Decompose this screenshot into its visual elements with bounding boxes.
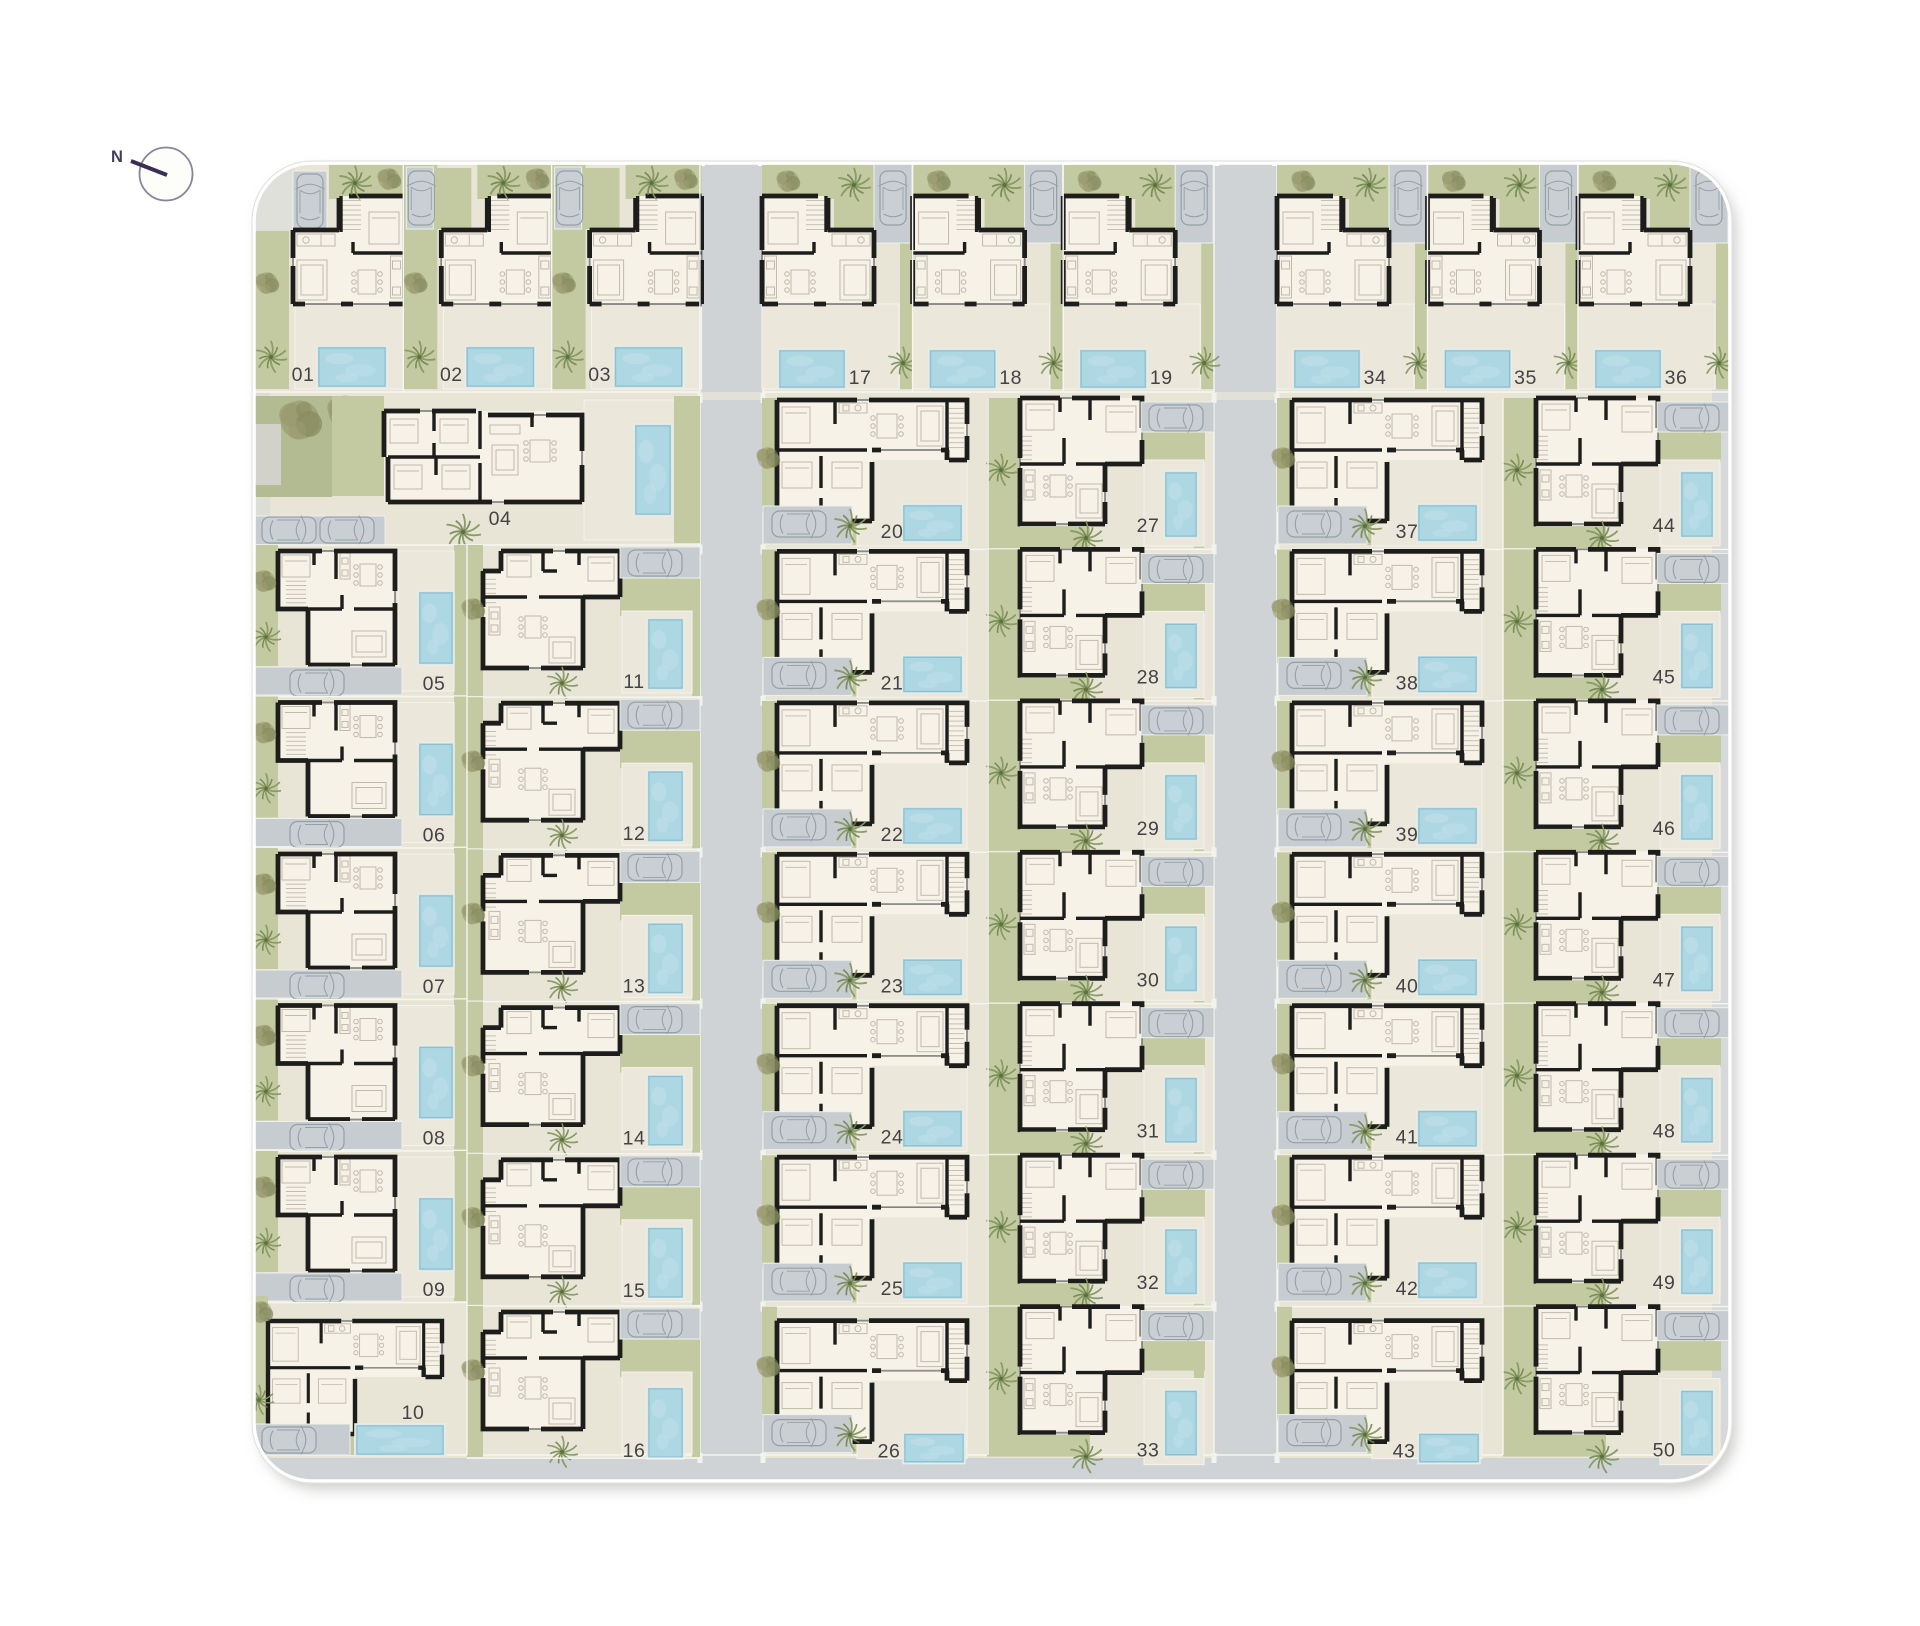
svg-text:18: 18 (999, 367, 1022, 389)
svg-text:40: 40 (1396, 975, 1419, 997)
svg-text:38: 38 (1396, 672, 1419, 694)
svg-text:28: 28 (1137, 666, 1160, 688)
svg-text:03: 03 (588, 364, 611, 386)
svg-text:10: 10 (402, 1402, 425, 1424)
svg-text:49: 49 (1653, 1272, 1676, 1294)
svg-text:48: 48 (1653, 1121, 1676, 1143)
svg-text:07: 07 (423, 976, 446, 998)
svg-text:09: 09 (423, 1279, 446, 1301)
svg-text:12: 12 (623, 823, 646, 845)
svg-text:34: 34 (1364, 367, 1387, 389)
svg-text:17: 17 (849, 367, 872, 389)
svg-text:14: 14 (623, 1128, 646, 1150)
svg-text:43: 43 (1393, 1441, 1416, 1463)
svg-text:30: 30 (1137, 969, 1160, 991)
svg-text:04: 04 (489, 508, 512, 530)
svg-text:35: 35 (1514, 367, 1537, 389)
svg-text:01: 01 (292, 364, 315, 386)
svg-text:41: 41 (1396, 1127, 1419, 1149)
svg-text:46: 46 (1653, 818, 1676, 840)
svg-text:02: 02 (440, 364, 463, 386)
svg-text:24: 24 (881, 1127, 904, 1149)
svg-text:45: 45 (1653, 666, 1676, 688)
svg-text:26: 26 (878, 1441, 901, 1463)
svg-text:21: 21 (881, 672, 904, 694)
svg-text:29: 29 (1137, 818, 1160, 840)
svg-text:32: 32 (1137, 1272, 1160, 1294)
svg-text:11: 11 (623, 671, 644, 693)
svg-text:15: 15 (623, 1280, 646, 1302)
svg-text:23: 23 (881, 975, 904, 997)
svg-text:13: 13 (623, 975, 646, 997)
svg-text:31: 31 (1137, 1121, 1160, 1143)
svg-text:33: 33 (1137, 1440, 1160, 1462)
svg-text:42: 42 (1396, 1278, 1419, 1300)
svg-text:19: 19 (1150, 367, 1173, 389)
svg-text:22: 22 (881, 824, 904, 846)
svg-text:27: 27 (1137, 515, 1160, 537)
svg-text:44: 44 (1653, 515, 1676, 537)
svg-text:37: 37 (1396, 521, 1419, 543)
svg-text:25: 25 (881, 1278, 904, 1300)
svg-text:06: 06 (423, 825, 446, 847)
svg-text:05: 05 (423, 673, 446, 695)
svg-text:08: 08 (423, 1128, 446, 1150)
svg-text:36: 36 (1665, 367, 1688, 389)
svg-text:50: 50 (1653, 1440, 1676, 1462)
svg-text:47: 47 (1653, 969, 1676, 991)
svg-text:20: 20 (881, 521, 904, 543)
svg-text:N: N (111, 148, 123, 166)
svg-text:39: 39 (1396, 824, 1419, 846)
